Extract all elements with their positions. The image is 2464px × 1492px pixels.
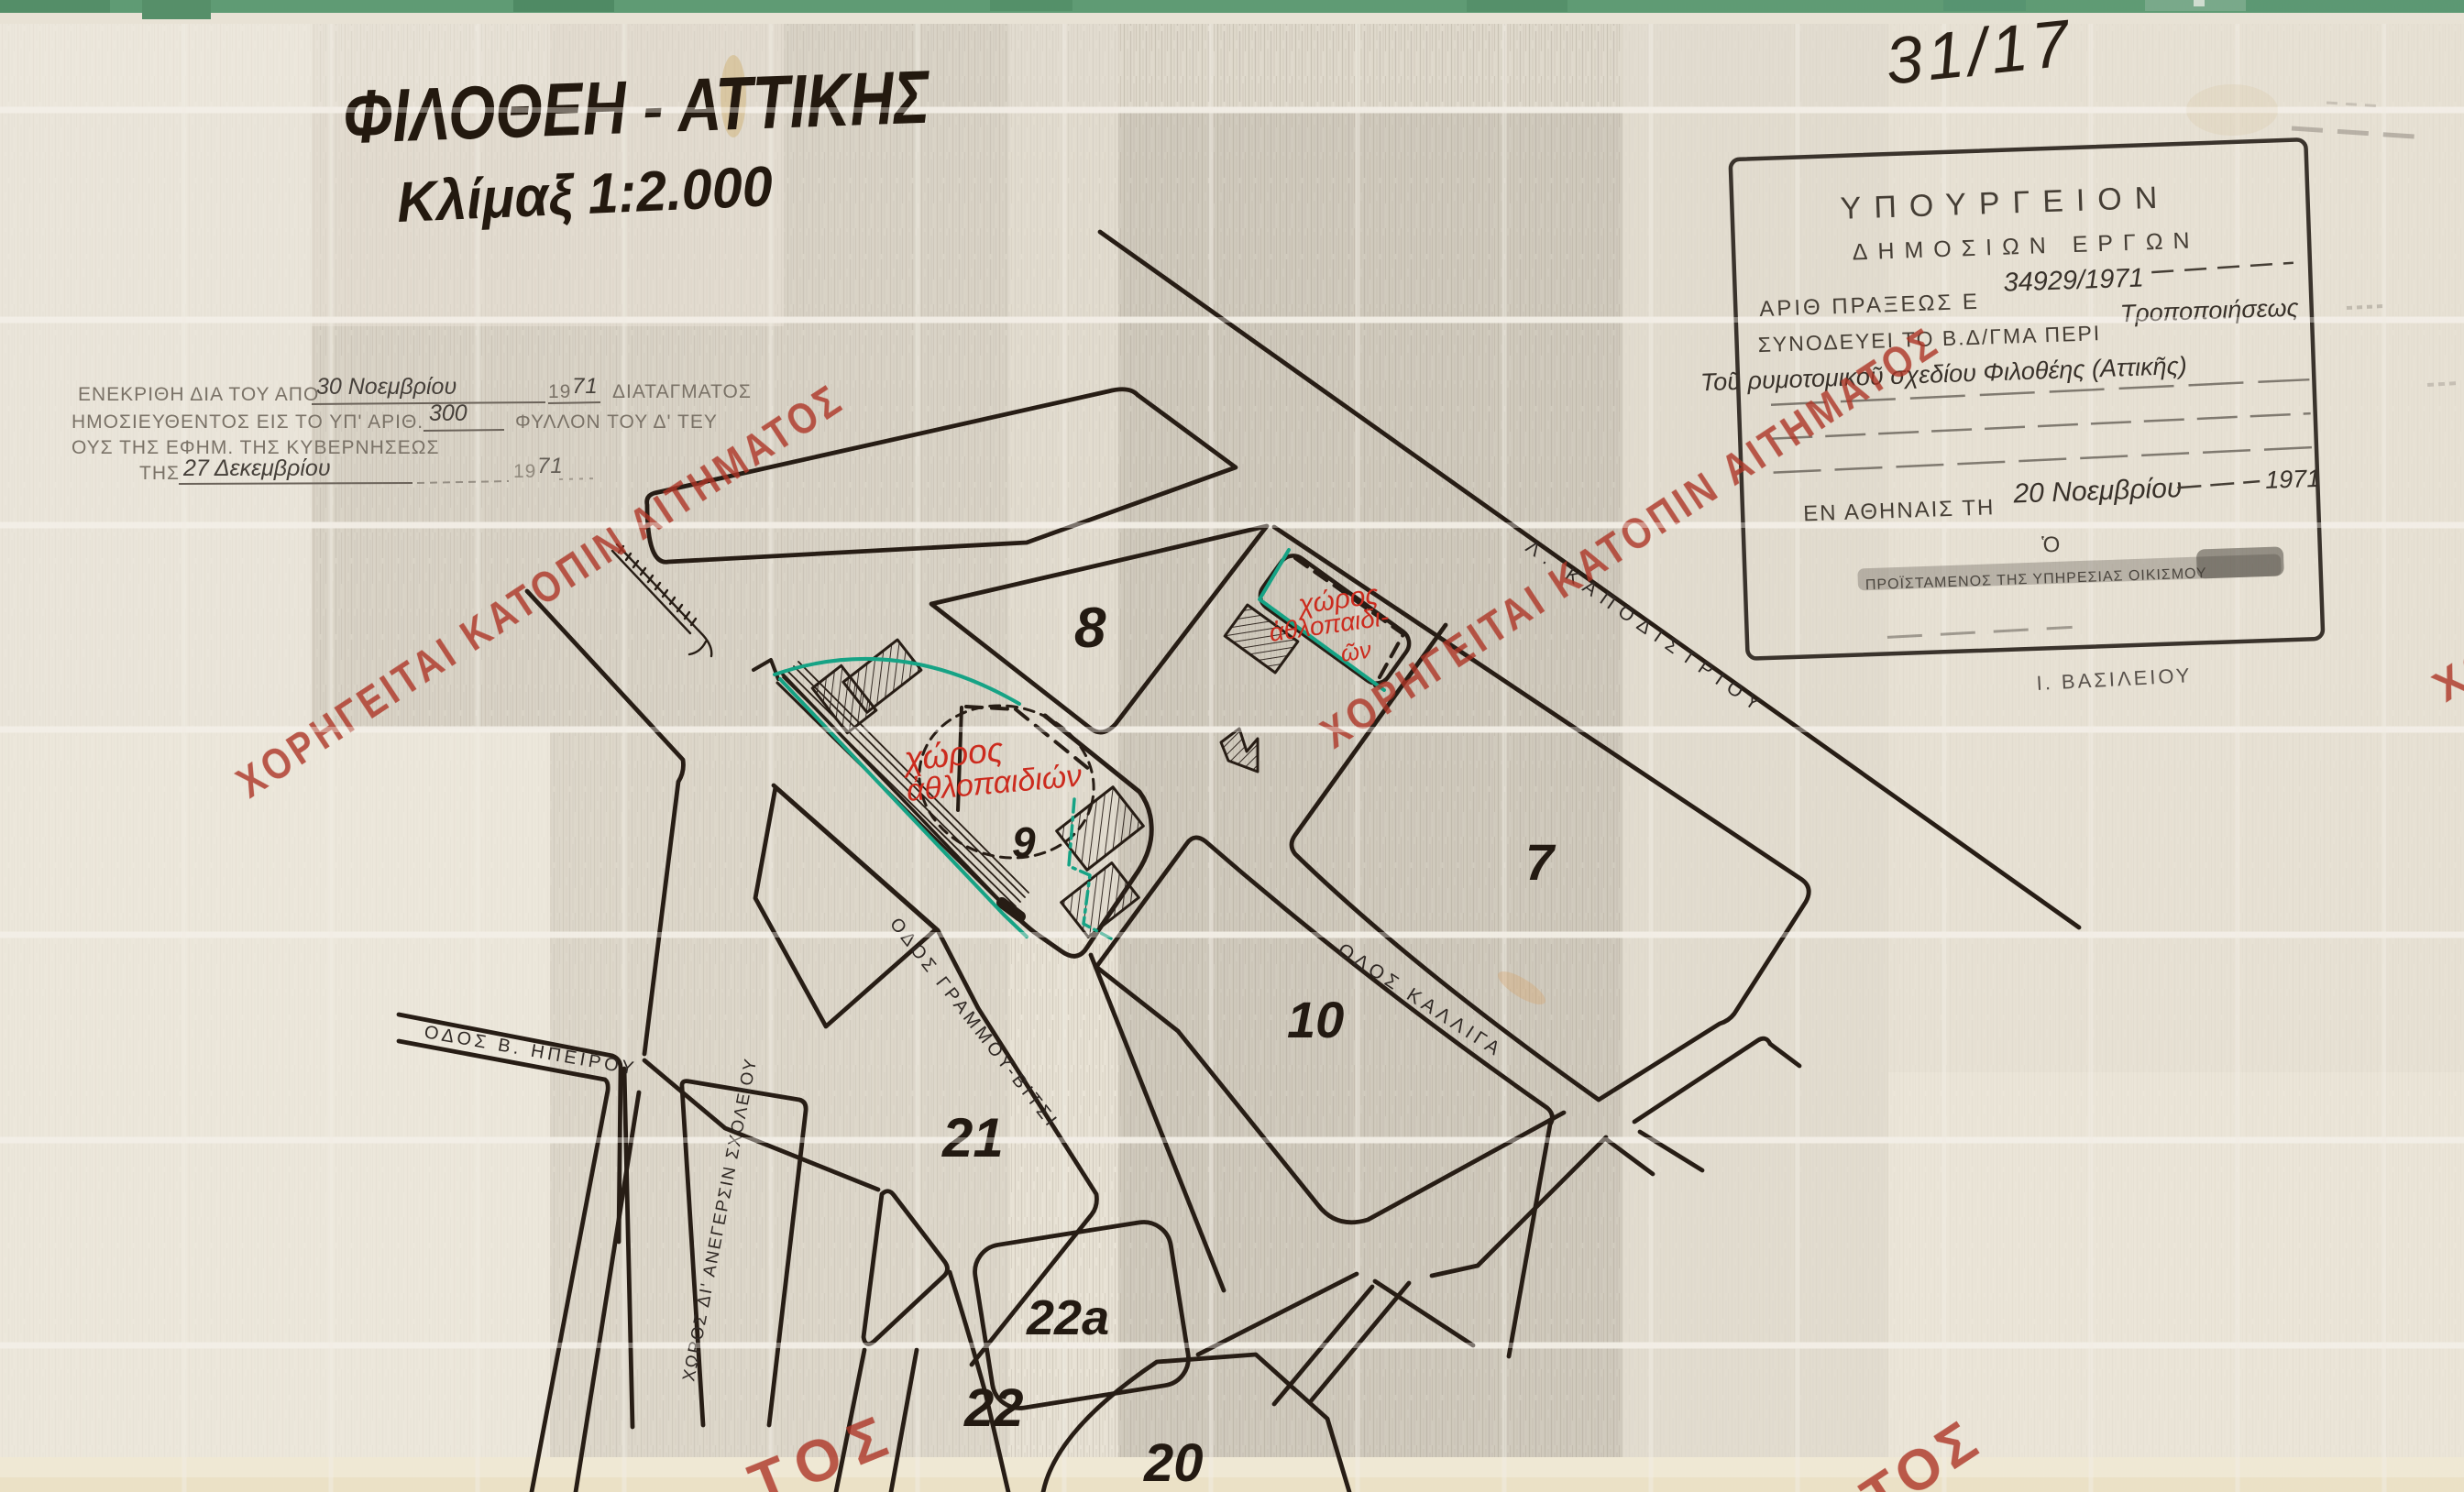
svg-text:19: 19 bbox=[548, 381, 571, 402]
svg-text:ΦΥΛΛΟΝ ΤΟΥ Δ' ΤΕΥ: ΦΥΛΛΟΝ ΤΟΥ Δ' ΤΕΥ bbox=[515, 411, 718, 433]
svg-text:ΤΗΣ: ΤΗΣ bbox=[139, 463, 180, 484]
svg-text:ΔΙΑΤΑΓΜΑΤΟΣ: ΔΙΑΤΑΓΜΑΤΟΣ bbox=[612, 381, 752, 402]
svg-text:71: 71 bbox=[537, 454, 564, 478]
svg-text:ΕΝΕΚΡΙΘΗ ΔΙΑ ΤΟΥ ΑΠΟ: ΕΝΕΚΡΙΘΗ ΔΙΑ ΤΟΥ ΑΠΟ bbox=[78, 384, 319, 405]
svg-text:19: 19 bbox=[513, 461, 536, 482]
svg-text:10: 10 bbox=[1287, 991, 1344, 1048]
svg-text:71: 71 bbox=[572, 374, 599, 399]
svg-text:20 Νοεμβρίου: 20 Νοεμβρίου bbox=[2012, 473, 2183, 509]
svg-text:Ὁ: Ὁ bbox=[2041, 532, 2061, 558]
svg-text:9: 9 bbox=[1012, 818, 1036, 866]
svg-text:34929/1971: 34929/1971 bbox=[2003, 263, 2144, 297]
svg-text:8: 8 bbox=[1074, 597, 1106, 660]
svg-text:ῶν: ῶν bbox=[1339, 636, 1373, 667]
svg-text:27 Δεκεμβρίου: 27 Δεκεμβρίου bbox=[182, 455, 331, 481]
svg-text:1971: 1971 bbox=[2265, 465, 2321, 494]
svg-text:20: 20 bbox=[1143, 1433, 1204, 1492]
svg-text:22a: 22a bbox=[1026, 1290, 1109, 1345]
svg-text:300: 300 bbox=[429, 400, 467, 426]
svg-text:7: 7 bbox=[1525, 833, 1556, 891]
svg-text:ΗΜΟΣΙΕΥΘΕΝΤΟΣ ΕΙΣ ΤΟ ΥΠ' ΑΡΙΘ.: ΗΜΟΣΙΕΥΘΕΝΤΟΣ ΕΙΣ ΤΟ ΥΠ' ΑΡΙΘ. bbox=[71, 411, 423, 433]
svg-text:30 Νοεμβρίου: 30 Νοεμβρίου bbox=[316, 374, 456, 400]
svg-text:22: 22 bbox=[963, 1378, 1024, 1438]
